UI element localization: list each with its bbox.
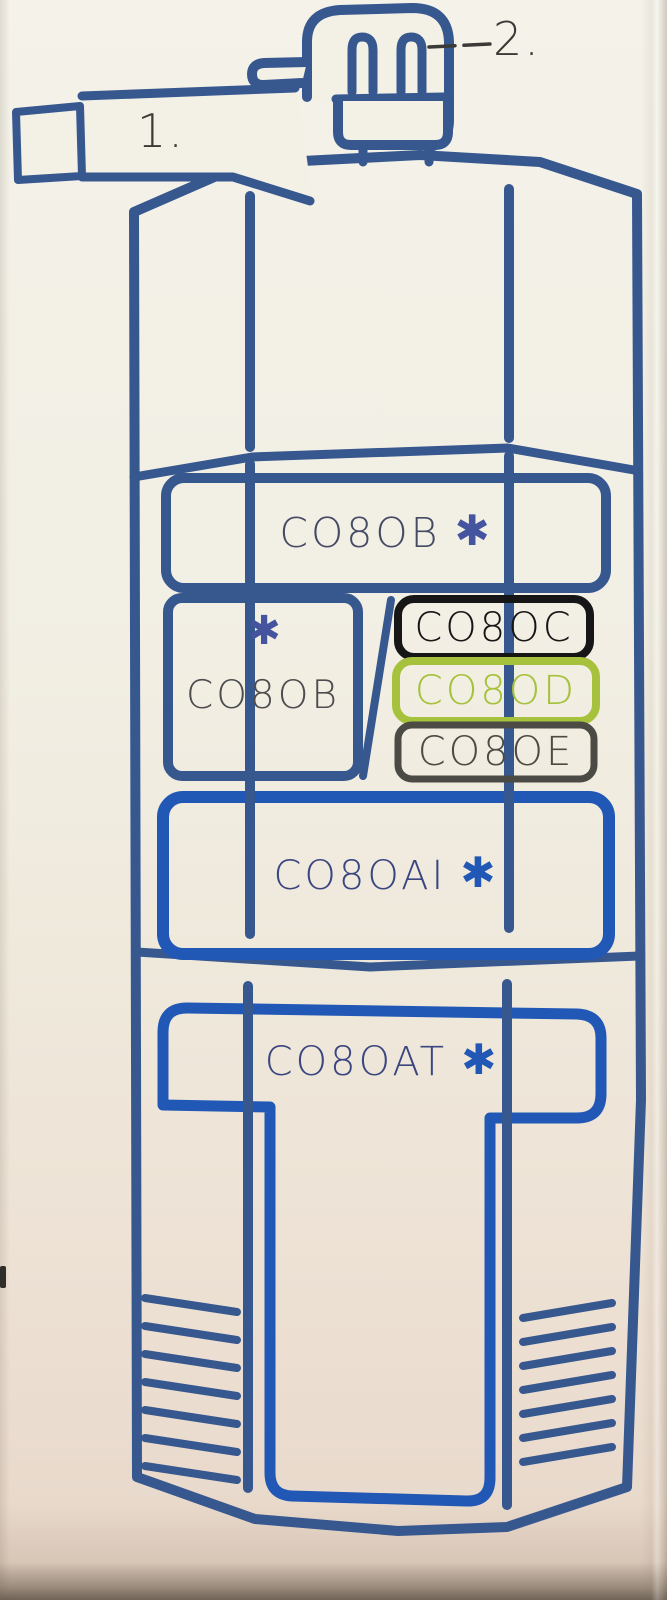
diagram-canvas: 1. 2. CO8OB ✱ ✱ CO8OB CO8OC CO8OD CO8OE …: [0, 0, 667, 1600]
vent-line: [523, 1327, 612, 1342]
label-variant-e-text: CO8OE: [418, 729, 575, 775]
label-variant-e: CO8OE: [398, 725, 594, 779]
vent-line: [523, 1351, 612, 1366]
vent-line: [523, 1375, 612, 1390]
paper-edge-shadow-right: [641, 0, 667, 1600]
asterisk-mark: ✱: [454, 506, 492, 555]
vent-line: [145, 1326, 237, 1340]
label-hopper-wide-text: CO8OB: [279, 509, 440, 557]
callout-2: 2.: [493, 12, 541, 66]
photo-artifact-tick: [0, 1266, 6, 1288]
asterisk-mark: ✱: [237, 608, 291, 654]
handle-end-cap: [16, 106, 82, 180]
asterisk-mark: ✱: [460, 848, 498, 897]
label-hopper-wide: CO8OB ✱: [166, 478, 606, 588]
label-hopper-square: CO8OB: [168, 655, 358, 735]
vent-line: [523, 1423, 612, 1438]
vent-line: [145, 1438, 237, 1452]
power-prong-right: [401, 37, 422, 92]
label-variant-c: CO8OC: [398, 599, 590, 657]
label-variant-d: CO8OD: [396, 661, 596, 721]
vent-line: [145, 1354, 237, 1368]
cap-collar: [338, 101, 448, 145]
label-base-body-text: CO8OAT: [265, 1039, 447, 1085]
paper-edge-shadow-left: [0, 0, 10, 1600]
vent-line: [145, 1382, 237, 1396]
vent-line: [145, 1410, 237, 1424]
cap-left-step: [252, 62, 307, 85]
vent-line: [523, 1303, 612, 1318]
vent-line: [145, 1298, 237, 1312]
label-hopper-square-text: CO8OB: [186, 673, 340, 718]
shoulder-crease-line: [134, 448, 634, 477]
label-mid-body: CO8OAI ✱: [163, 797, 609, 954]
callout-1: 1.: [137, 104, 185, 158]
vent-slots-left: [145, 1298, 237, 1480]
power-prong-left: [352, 37, 373, 92]
vent-line: [523, 1447, 612, 1462]
variant-slash: [363, 600, 391, 776]
vent-line: [145, 1466, 237, 1480]
label-base-body: CO8OAT ✱: [163, 1010, 601, 1114]
label-variant-d-text: CO8OD: [415, 668, 577, 714]
label-variant-c-text: CO8OC: [414, 605, 573, 651]
vent-line: [523, 1399, 612, 1414]
cap-base-line: [336, 97, 444, 99]
label-mid-body-text: CO8OAI: [273, 853, 446, 899]
asterisk-mark: ✱: [461, 1035, 499, 1084]
vent-slots-right: [523, 1303, 612, 1462]
